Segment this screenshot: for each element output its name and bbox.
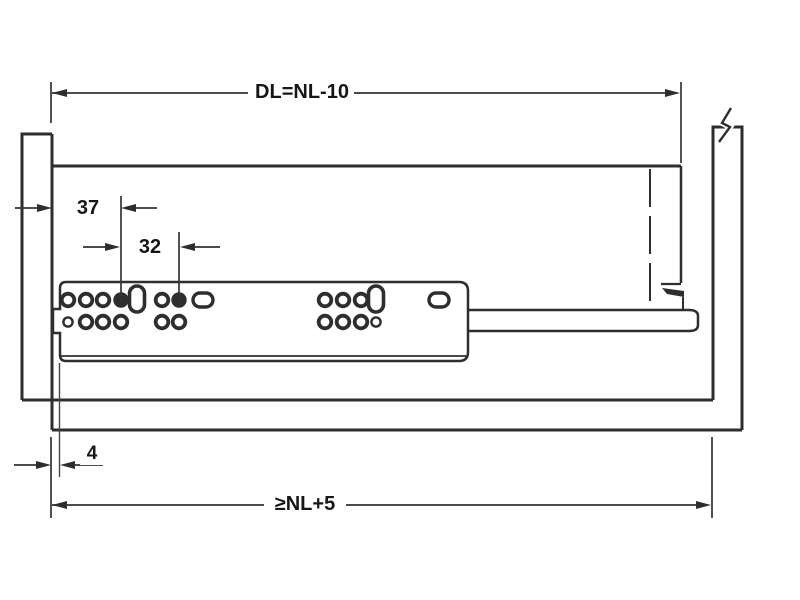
cabinet-rear-panel (713, 127, 742, 430)
dimension-label-nl: ≥NL+5 (264, 493, 346, 515)
drawer-runner-installation-diagram: DL=NL-10 37 32 4 ≥NL+5 (0, 0, 800, 600)
dimension-nl (51, 437, 712, 518)
dimension-dl (51, 82, 681, 163)
dimension-label-4: 4 (80, 443, 104, 465)
rear-hook (661, 284, 684, 310)
dimension-label-dl: DL=NL-10 (250, 81, 354, 103)
dimension-label-37: 37 (71, 197, 105, 219)
diagram-canvas (0, 0, 800, 600)
dimension-label-32: 32 (133, 236, 167, 258)
runner-rail (466, 310, 698, 331)
break-mark (719, 108, 731, 142)
cabinet-bottom-panel (22, 400, 742, 430)
front-panel (22, 134, 52, 430)
